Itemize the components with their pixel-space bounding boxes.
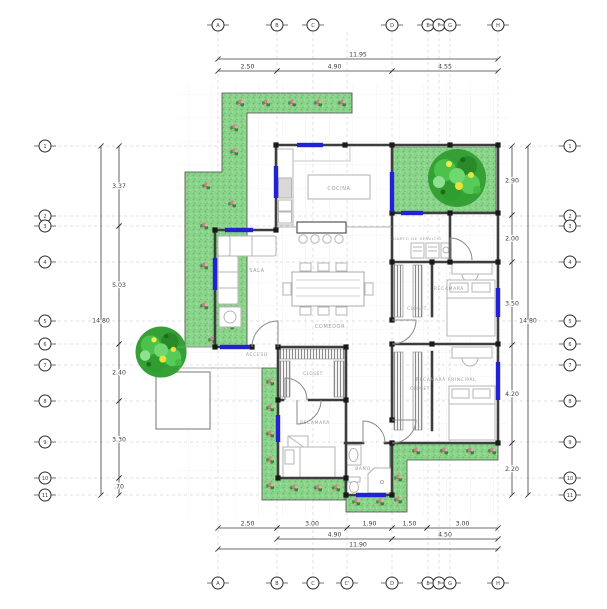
window [225,228,253,232]
grid-marker-label: B [275,23,279,29]
sofa-corner [218,236,230,256]
dimension-value: 11.95 [349,52,367,59]
closet-shelves [394,352,403,430]
wall-post [343,397,348,402]
bath-sink [349,449,358,462]
kitchen-sink [279,200,292,211]
wall-post [343,475,348,480]
grid-marker-label: C [311,23,315,29]
room-label-cocina: COCINA [327,186,350,192]
grid-marker-label: 4 [43,260,46,266]
wall-post [495,440,500,445]
toilet [350,482,359,493]
bar-stool [299,235,307,243]
room-label-recamara2: RECAMARÁ [434,285,464,292]
window [401,211,423,215]
grid-marker-label: E [426,581,429,587]
dining-chair [336,307,347,315]
table-lamp [224,311,236,323]
wall-post [495,259,500,264]
wall-post [212,344,217,349]
room-label-closet-entry: CLOSET [303,371,323,376]
grid-marker-label: A [216,581,220,587]
grid-marker-label: B [275,581,279,587]
window [496,288,500,317]
pillow [285,450,294,464]
room-label-closet2: CLOSET [407,306,427,311]
wall-post [212,227,217,232]
dining-chair [336,263,347,271]
dining-chair [300,307,311,315]
dining-table [292,272,364,306]
wall-post [389,259,394,264]
grid-marker-label: 5 [43,319,46,325]
dimension-value: 4.50 [438,532,452,539]
dining-chair [300,263,311,271]
tree-icon [428,149,486,207]
window [356,493,386,497]
room-label-bano: BAÑO [355,465,370,472]
dimension-value: 4.90 [328,64,342,71]
wall-post [447,142,452,147]
grid-marker-label: C' [345,581,350,587]
bar-stool [311,235,319,243]
window [274,166,278,198]
tree-planter-box [156,372,210,429]
window [297,143,323,147]
grid-marker-label: 11 [42,493,48,499]
grid-marker-label: 6 [43,342,46,348]
grid-marker-label: G [448,23,452,29]
grid-marker-label: 9 [568,440,571,446]
wall-post [273,227,278,232]
grid-marker-label: 7 [568,363,571,369]
room-label-recamara3: RECAMARÁ [300,419,330,426]
pillow [452,389,469,398]
floor-plan-canvas: COCINA SALA COMEDOR ACCESO CUARTO DE SER… [0,0,607,609]
breakfast-bar [297,222,346,233]
dimension-value: 3.50 [505,301,519,308]
bar-stool [335,235,343,243]
kitchen-cabinet [279,212,292,223]
room-label-comedor: COMEDOR [315,324,345,330]
wall-post [447,259,452,264]
dimension-value: 1.90 [363,521,377,528]
dimension-value: 3.37 [112,183,126,190]
dining-chair [365,283,373,295]
grid-marker-label: C [311,581,315,587]
pillow [473,389,490,398]
dimension-value: 2.00 [505,236,519,243]
desk [452,347,492,358]
grid-marker-label: 1 [568,144,571,150]
dimension-value: 3.30 [112,437,126,444]
wall-post [429,341,434,346]
grid-marker-label: F [438,23,441,29]
dining-chair [283,283,291,295]
grid-marker-label: E [426,23,429,29]
grid-marker-label: 3 [43,224,46,230]
dimension-value: .70 [114,484,124,491]
wall-post [342,142,347,147]
window [220,345,250,349]
grid-marker-label: D [390,581,394,587]
wall-post [343,492,348,497]
shower-drain [381,481,384,484]
grid-marker-label: 7 [43,363,46,369]
dimension-value: 11.90 [349,542,367,549]
wall-post [275,475,280,480]
closet-shelves [413,352,422,430]
grid-marker-label: 3 [568,224,571,230]
wall-post [389,492,394,497]
dimension-value: 3.00 [456,521,470,528]
dining-chair [318,263,329,271]
floor-plan-drawing: COCINA SALA COMEDOR ACCESO CUARTO DE SER… [0,0,607,609]
stove [279,178,292,198]
grid-marker-label: A [216,23,220,29]
dimension-value: 4.90 [328,532,342,539]
wall-post [495,341,500,346]
grid-marker-label: 1 [43,144,46,150]
dimension-value: 5.03 [112,282,126,289]
dimension-value: 3.00 [305,521,319,528]
room-label-acceso: ACCESO [246,352,268,358]
shower [368,468,392,493]
grid-marker-label: H [496,23,500,29]
wall-post [273,142,278,147]
dimension-value: 14.80 [92,318,110,325]
dimension-value: 4.20 [505,391,519,398]
grid-marker-label: 4 [568,260,571,266]
wall-post [275,397,280,402]
room-label-sala: SALA [249,268,264,274]
grid-marker-label: F [438,581,441,587]
grid-marker-label: 6 [568,342,571,348]
tree-icon [136,327,187,378]
window [390,172,394,212]
laundry-sink-bowl [443,247,449,253]
pillow [472,283,490,292]
desk [452,263,492,274]
wall-post [495,210,500,215]
grid-marker-label: D [390,23,394,29]
dimension-value: 2.50 [241,521,255,528]
grid-marker-label: 2 [43,214,46,220]
wall-post [343,344,348,349]
wall-post [447,210,452,215]
grid-marker-label: 2 [568,214,571,220]
closet-shelves [334,361,344,397]
wall-post [389,142,394,147]
dimension-value: 1.50 [403,521,417,528]
room-label-recamara-principal: RECAMARÁ PRINCIPAL [416,376,476,383]
dining-chair [318,307,329,315]
window [213,258,217,290]
grid-marker-label: 8 [568,399,571,405]
dimension-value: 2.90 [505,178,519,185]
window [276,415,280,442]
grid-marker-label: 10 [42,476,48,482]
grid-marker-label: 8 [43,399,46,405]
wall-post [429,259,434,264]
dimension-value: 4.55 [438,64,452,71]
room-label-closet-principal: CLOSET [410,386,430,391]
dimension-value: 2.40 [112,370,126,377]
grid-marker-label: H [496,581,500,587]
wall-post [495,142,500,147]
closet-shelves [394,265,403,317]
grid-marker-label: G [448,581,452,587]
grid-marker-label: 9 [43,440,46,446]
grid-marker-label: 5 [568,319,571,325]
dimension-value: 2.50 [241,64,255,71]
bar-stool [323,235,331,243]
dimension-value: 2.20 [505,466,519,473]
room-label-cuarto-servicio: CUARTO DE SERVICIO [390,236,442,241]
closet-shelves [280,349,344,359]
grid-marker-label: 11 [567,493,573,499]
grid-marker-label: 10 [567,476,573,482]
sofa-side [218,256,238,304]
window [496,362,500,400]
dimension-value: 14.80 [519,318,537,325]
